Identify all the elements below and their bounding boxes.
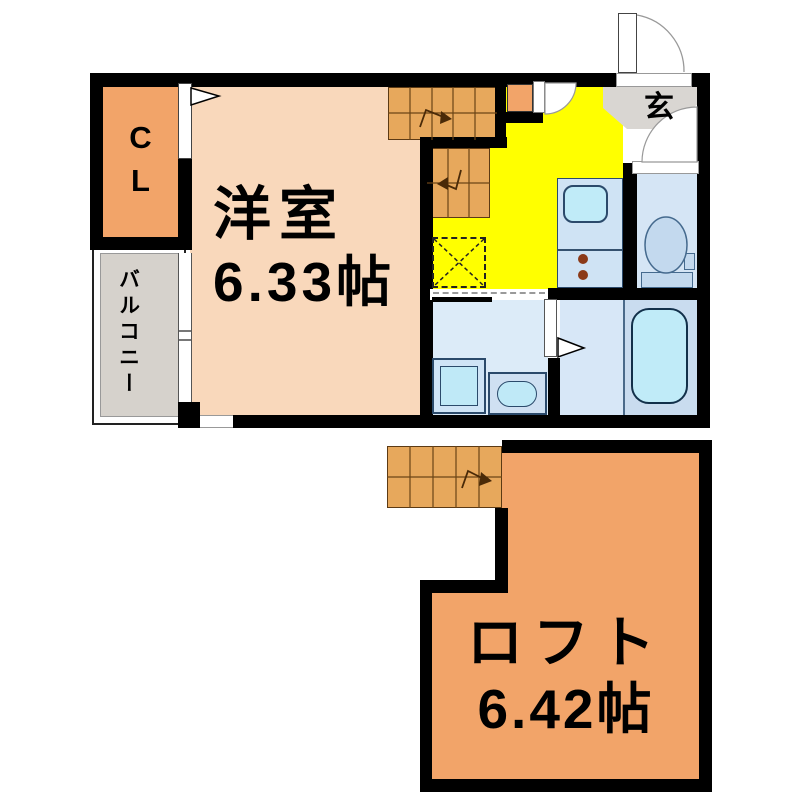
wall-bottom-stub <box>178 402 200 416</box>
entrance-door-sill <box>616 73 692 87</box>
bottom-wall-window-gap <box>200 415 233 428</box>
wall-mid-horizontal <box>548 288 710 300</box>
kitchen-door-leaf <box>533 81 545 113</box>
shoe-cabinet <box>507 84 533 112</box>
washing-machine-drum <box>440 366 478 406</box>
wall-bottom <box>178 415 710 428</box>
window-tick <box>179 330 191 332</box>
kitchen-sink <box>563 185 608 223</box>
vanity-basin <box>497 381 537 407</box>
bathroom-door-leaf <box>544 299 557 357</box>
entrance-label: 玄 <box>639 93 679 127</box>
balcony-window <box>178 253 192 402</box>
loft-name: ロフト <box>432 610 700 676</box>
entrance-door-leaf <box>618 13 637 73</box>
loft-wall-top <box>502 440 712 453</box>
main-room-size: 6.33帖 <box>213 250 443 314</box>
balcony-label: バルコニー <box>102 257 154 409</box>
wall-cabinet-bottom <box>495 112 543 123</box>
bathtub <box>631 308 688 404</box>
stove-burner <box>578 254 588 264</box>
toilet-door-sill <box>632 161 699 174</box>
loft-wall-step-vertical <box>495 508 508 593</box>
wall-under-stairs <box>421 137 507 148</box>
entrance-door-swing-arc <box>637 15 684 72</box>
wall-left <box>90 73 103 250</box>
wall-closet-divider <box>178 158 192 250</box>
wall-toilet-left <box>623 163 637 300</box>
toilet-pedestal <box>641 272 693 288</box>
wall-closet-bottom <box>90 237 190 250</box>
main-room-name: 洋室 <box>213 180 443 250</box>
counter-divider-line <box>558 249 622 251</box>
wall-right <box>697 73 710 428</box>
loft-wall-right <box>699 440 712 792</box>
window-tick <box>179 339 191 341</box>
bathroom-floor <box>560 300 623 415</box>
loft-staircase <box>387 446 502 508</box>
loft-wall-left <box>420 580 432 792</box>
stove-burner <box>578 270 588 280</box>
closet-label: CL <box>103 115 178 210</box>
loft-size: 6.42帖 <box>432 676 700 742</box>
wall-washroom-bath-divider <box>548 358 560 428</box>
staircase-upper <box>388 87 497 140</box>
toilet-flush-tank <box>684 253 695 270</box>
closet-door-leaf <box>178 83 192 159</box>
loft-label: ロフト 6.42帖 <box>432 610 700 742</box>
floor-plan-canvas: CL バルコニー 玄 洋室 6.33帖 ロフト 6.42帖 <box>0 0 800 800</box>
main-room-label: 洋室 6.33帖 <box>213 180 443 314</box>
door-track-dashed-line <box>433 292 545 294</box>
loft-wall-bottom <box>420 779 712 792</box>
